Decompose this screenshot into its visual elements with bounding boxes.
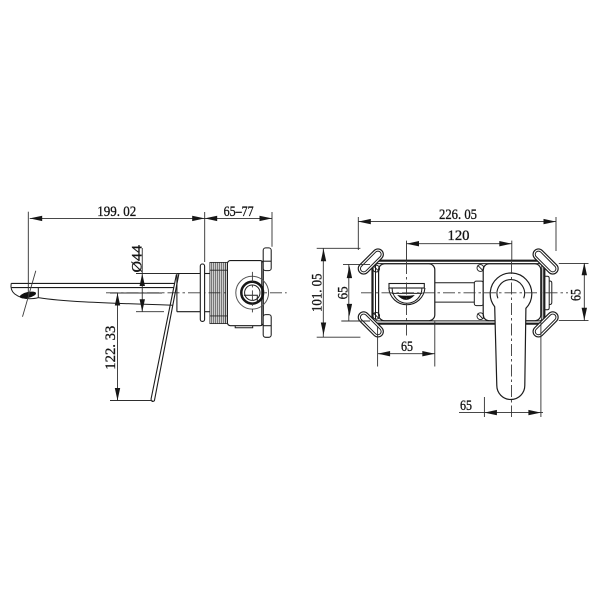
svg-text:120: 120 [448,228,470,244]
svg-text:226. 05: 226. 05 [439,207,477,223]
svg-text:Ø44: Ø44 [129,244,145,272]
svg-text:122. 33: 122. 33 [103,326,119,370]
svg-text:65–77: 65–77 [224,204,254,220]
svg-text:65: 65 [460,398,472,414]
svg-text:101. 05: 101. 05 [310,274,326,313]
svg-text:65: 65 [401,339,413,355]
svg-text:199. 02: 199. 02 [97,204,136,220]
svg-text:65: 65 [569,289,585,301]
svg-text:65: 65 [335,286,351,299]
